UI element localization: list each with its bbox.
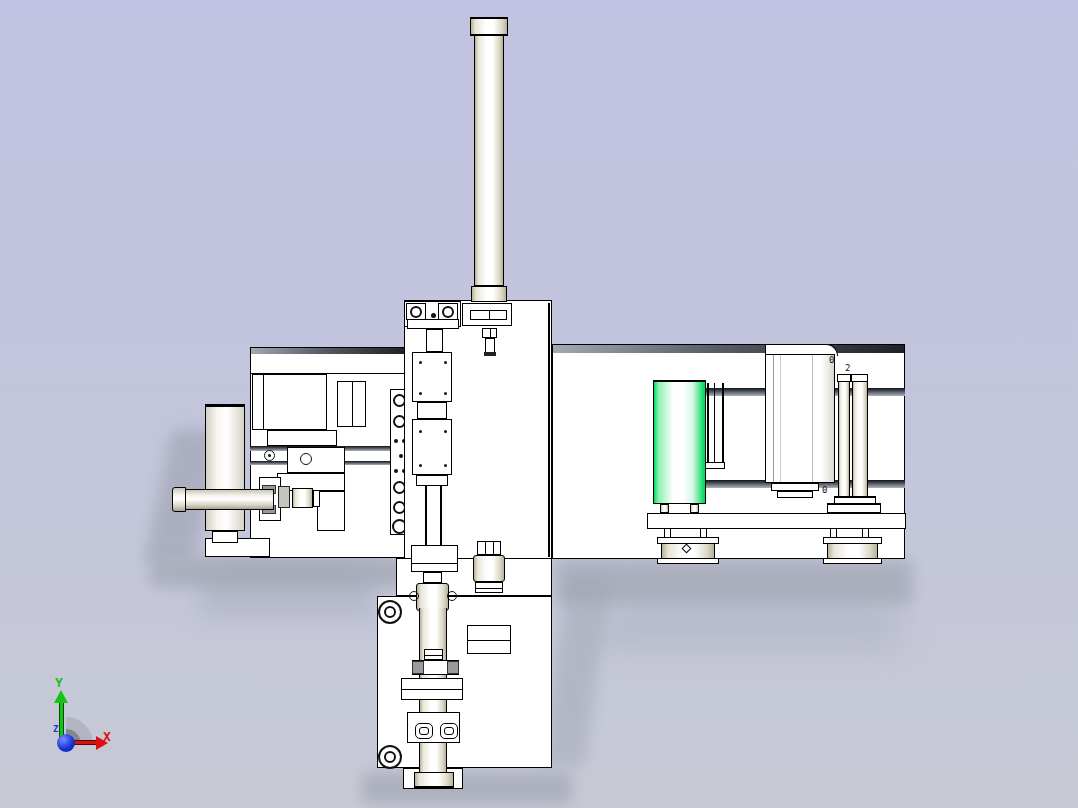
guide-bolt-dot [419,392,422,395]
slot-hole [440,723,458,739]
screw-dot [394,439,398,443]
green-cylinder-leg [690,504,699,513]
guide-rod-vertical[interactable] [425,486,442,546]
coupler-washer [313,490,320,507]
twin-port-block[interactable] [337,381,366,427]
coupling-stem-upper [423,572,442,583]
roller-edge-line [780,355,781,482]
guide-bolt-dot [444,361,447,364]
guide-bolt-dot [419,430,422,433]
highlighted-green-cylinder[interactable] [653,380,706,504]
post-top-mark: 2 [845,364,850,373]
cylinder-body-block[interactable] [252,374,327,430]
origin-sphere [57,734,75,752]
side-terminal-block[interactable] [467,625,511,654]
guide-bolt-dot [419,361,422,364]
bottom-bracket-bar [411,563,458,572]
screw-dot [399,454,403,458]
bracket-pin [431,313,436,318]
guide-connector [417,402,447,419]
actuator-cylinder[interactable] [205,404,245,531]
terminal-divider [468,640,510,641]
lower-shaft-tip[interactable] [414,772,454,789]
roller-base-step2 [777,491,813,498]
carriage-hole [300,453,312,465]
bracket-bar [407,319,459,329]
thin-post-foot [705,462,725,469]
guide-bolt-dot [444,392,447,395]
guide-block-upper[interactable] [412,352,452,402]
washer-divider [490,329,491,337]
mid-manifold-block[interactable] [267,430,337,446]
plate-line [402,689,462,690]
x-axis-label: X [103,730,111,743]
shadow-under-right-wing-fade [600,596,900,652]
right-plate-top-chamfer [553,345,904,353]
x-axis-shaft [74,740,97,745]
vertical-piston-rod[interactable] [474,36,504,286]
roller-cylinder[interactable] [765,354,835,483]
block-divider-line [352,382,353,426]
socket-head-screw-inner [384,606,396,618]
block-edge-line [263,375,264,429]
washer-line [476,588,502,589]
rod-coupler[interactable] [292,488,313,508]
slot-hole [415,723,433,739]
post-bottom-mark: 0 [822,486,827,495]
roller-side-shade [821,355,834,482]
hex-line [485,542,486,554]
guide-bolt-dot [419,464,422,467]
slot-divider [489,311,490,319]
bracket-screw [410,306,422,318]
sensor-block-slot [470,310,507,320]
support-post-right[interactable] [852,381,868,497]
bolt-washer [482,328,497,338]
thin-post-pair[interactable] [707,383,724,467]
slot-block[interactable] [407,712,460,743]
bolt-tip [484,352,496,356]
cad-viewport[interactable]: 0 2 0 [0,0,1078,808]
actuator-cylinder-stub [212,531,238,543]
hex-line [493,542,494,554]
rod-gray-washer [278,486,290,508]
slot-hole-inner [419,727,429,735]
guide-bolt-dot [444,464,447,467]
vertical-rod-base[interactable] [471,286,507,302]
shadow-under-bottom-panel [362,772,572,804]
bracket-arm[interactable] [317,491,345,531]
roller-edge-line [773,355,774,482]
shaft-coupling[interactable] [416,583,449,611]
piston-rod-end-cap[interactable] [172,487,186,512]
socket-head-screw-inner [384,751,396,763]
slot-hole-inner [444,727,454,735]
foot2-bottom-flange [823,558,882,564]
bracket-stem [426,329,443,352]
bolt-shank [485,338,495,353]
post-base-pad [827,503,881,513]
y-axis-label: Y [55,676,63,689]
coupling-ear [409,591,419,601]
shadow-under-left-wing-wedge [200,560,375,618]
bracket-screw [442,306,454,318]
guide-block-lower[interactable] [412,419,452,475]
turnbuckle-washer [475,582,503,593]
piston-rod-horizontal[interactable] [185,489,274,510]
coupling-ear [447,591,457,601]
screw-dot [394,469,398,473]
bracket-screw-housing-left [406,303,426,320]
slider-carriage[interactable] [287,447,345,473]
roller-edge-line [812,355,813,482]
green-cylinder-leg [660,504,669,513]
y-axis-arrowhead [54,690,68,703]
sensor-block[interactable] [462,303,512,326]
rail-bolt-center [268,454,271,457]
bottom-bracket[interactable] [411,545,458,565]
support-post-left[interactable] [838,381,850,497]
z-axis-label: Z [53,725,58,734]
foot1-bottom-flange [657,558,719,564]
turnbuckle-body[interactable] [473,555,505,582]
base-rail-bar[interactable] [647,513,906,529]
vertical-rod-cap[interactable] [470,17,508,36]
clamp-jaw-left [412,661,424,674]
roller-base-step1 [771,483,819,491]
guide-flange [416,475,448,486]
guide-bolt-dot [444,430,447,433]
turnbuckle-hex [477,541,501,555]
clamp-plate[interactable] [401,678,463,700]
center-plate-edge-line [548,303,550,557]
bracket-screw-housing-right [438,303,458,320]
foot2-body[interactable] [827,543,878,559]
thin-post-inner-line [714,383,715,467]
shaft-washer-pair [424,649,443,660]
roller-top-mark: 0 [829,356,834,365]
clamp-jaw-right [447,661,459,674]
left-plate-top-chamfer [251,348,404,354]
washer-line [425,655,442,656]
